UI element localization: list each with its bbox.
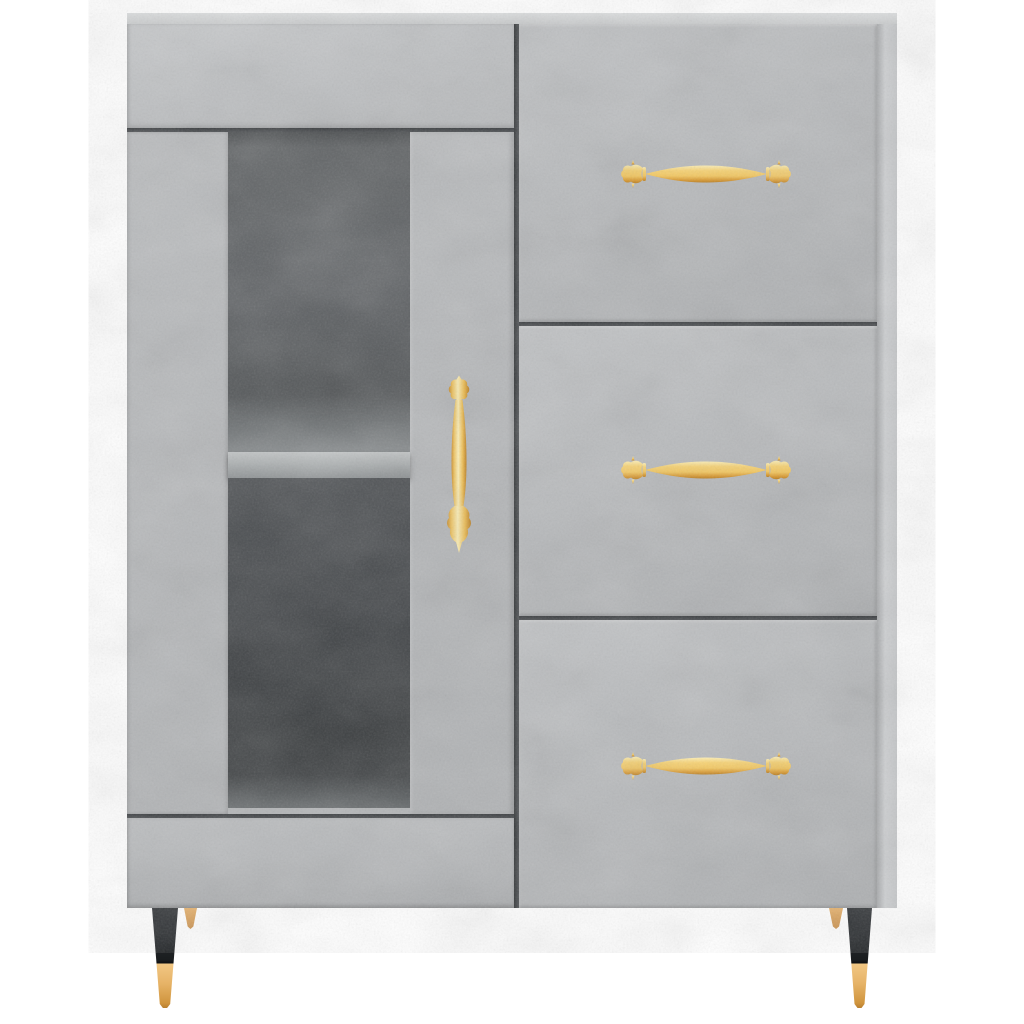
shelf-top-surface [228, 395, 410, 452]
cabinet-right-side [877, 24, 897, 908]
rear-right-leg [829, 908, 843, 929]
glass-interior-back [228, 132, 410, 395]
drawer-middle [519, 326, 877, 616]
glass-door-window [228, 132, 410, 808]
interior-shelf [228, 452, 410, 478]
drawer-handle [620, 158, 792, 190]
top-panel [127, 24, 514, 128]
door-handle [444, 374, 474, 560]
drawer-handle [620, 750, 792, 782]
rear-left-leg [184, 908, 197, 929]
front-right-leg [847, 908, 872, 1008]
glass-interior-lower [228, 478, 410, 808]
bottom-rail [127, 818, 514, 908]
cabinet-top-edge [127, 13, 897, 24]
drawer-bottom [519, 620, 877, 908]
drawer-top [519, 24, 877, 322]
drawer-handle [620, 454, 792, 486]
product-photo [0, 0, 1024, 1024]
door-left-stile [127, 132, 228, 814]
front-left-leg [152, 908, 178, 1008]
